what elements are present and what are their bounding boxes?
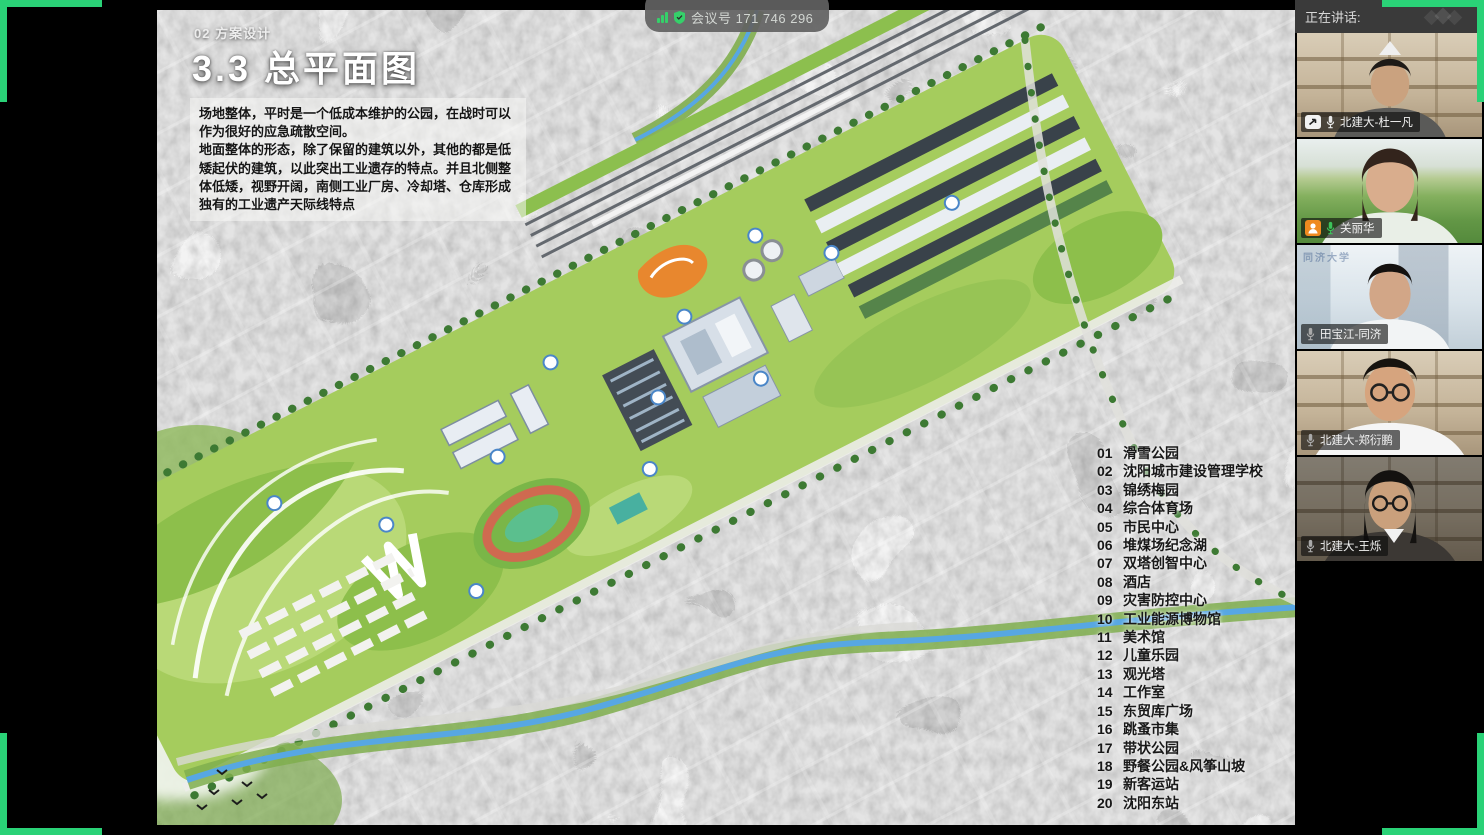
participant-video-1[interactable]: 北建大-杜一凡 <box>1297 33 1482 137</box>
participant-video-5[interactable]: 北建大-王烁 <box>1297 457 1482 561</box>
legend-item: 18野餐公园&风筝山坡 <box>1097 757 1325 775</box>
participant-name: 田宝江-同济 <box>1320 326 1381 342</box>
participant-name-bar: 北建大-郑衍鹏 <box>1301 430 1400 450</box>
mic-muted-icon <box>1305 327 1316 341</box>
participant-name-bar: 北建大-王烁 <box>1301 536 1388 556</box>
meeting-window: 02 方案设计 3.3 总平面图 场地整体，平时是一个低成本维护的公园，在战时可… <box>0 0 1484 835</box>
legend-item: 04综合体育场 <box>1097 499 1325 517</box>
legend-item: 03锦绣梅园 <box>1097 481 1325 499</box>
page-title: 3.3 总平面图 <box>192 40 420 92</box>
legend-item: 09灾害防控中心 <box>1097 591 1325 609</box>
participant-video-2[interactable]: 关丽华 <box>1297 139 1482 243</box>
meeting-id-pill[interactable]: 会议号 171 746 296 <box>645 0 829 32</box>
security-shield-icon <box>674 11 685 24</box>
participant-video-4[interactable]: 北建大-郑衍鹏 <box>1297 351 1482 455</box>
mic-on-icon <box>1325 221 1336 235</box>
sidebar-header: 正在讲话: <box>1295 0 1484 33</box>
participant-name-bar: 北建大-杜一凡 <box>1301 112 1420 132</box>
participant-video-3[interactable]: 同济大学 田宝江-同济 <box>1297 245 1482 349</box>
signal-icon <box>657 11 668 23</box>
description-paragraph-1: 场地整体，平时是一个低成本维护的公园，在战时可以作为很好的应急疏散空间。 <box>199 105 517 141</box>
legend-item: 12儿童乐园 <box>1097 646 1325 664</box>
speaking-now-label: 正在讲话: <box>1305 7 1361 26</box>
app-watermark-logo <box>1420 6 1466 28</box>
avatar-badge-icon <box>1305 220 1321 236</box>
meeting-id-label: 会议号 171 746 296 <box>691 8 813 27</box>
participant-name: 北建大-王烁 <box>1320 538 1381 554</box>
mic-on-icon <box>1325 115 1336 129</box>
participant-name: 北建大-郑衍鹏 <box>1320 432 1393 448</box>
participant-name-bar: 关丽华 <box>1301 218 1382 238</box>
legend-item: 20沈阳东站 <box>1097 794 1325 812</box>
legend-item: 13观光塔 <box>1097 665 1325 683</box>
legend-item: 07双塔创智中心 <box>1097 554 1325 572</box>
mic-muted-icon <box>1305 539 1316 553</box>
legend-item: 17带状公园 <box>1097 739 1325 757</box>
legend-item: 01滑雪公园 <box>1097 444 1325 462</box>
legend-item: 14工作室 <box>1097 683 1325 701</box>
frame-bracket-bottom-left <box>0 733 102 835</box>
legend-item: 06堆煤场纪念湖 <box>1097 536 1325 554</box>
frame-bracket-top-left <box>0 0 102 102</box>
participant-name: 关丽华 <box>1340 220 1375 236</box>
legend-item: 15东贸库广场 <box>1097 702 1325 720</box>
legend-item: 05市民中心 <box>1097 518 1325 536</box>
map-legend: 01滑雪公园 02沈阳城市建设管理学校 03锦绣梅园 04综合体育场 05市民中… <box>1097 444 1325 812</box>
mic-muted-icon <box>1305 433 1316 447</box>
legend-item: 16跳蚤市集 <box>1097 720 1325 738</box>
legend-item: 11美术馆 <box>1097 628 1325 646</box>
participants-sidebar: 正在讲话: <box>1295 0 1484 835</box>
participant-name-bar: 田宝江-同济 <box>1301 324 1388 344</box>
legend-item: 19新客运站 <box>1097 775 1325 793</box>
description-box: 场地整体，平时是一个低成本维护的公园，在战时可以作为很好的应急疏散空间。 地面整… <box>190 98 526 221</box>
description-paragraph-2: 地面整体的形态，除了保留的建筑以外，其他的都是低矮起伏的建筑，以此突出工业遗存的… <box>199 141 517 214</box>
shared-screen: 02 方案设计 3.3 总平面图 场地整体，平时是一个低成本维护的公园，在战时可… <box>157 10 1331 825</box>
legend-item: 10工业能源博物馆 <box>1097 610 1325 628</box>
legend-item: 02沈阳城市建设管理学校 <box>1097 462 1325 480</box>
legend-item: 08酒店 <box>1097 573 1325 591</box>
participant-name: 北建大-杜一凡 <box>1340 114 1413 130</box>
screen-share-icon <box>1305 115 1321 129</box>
